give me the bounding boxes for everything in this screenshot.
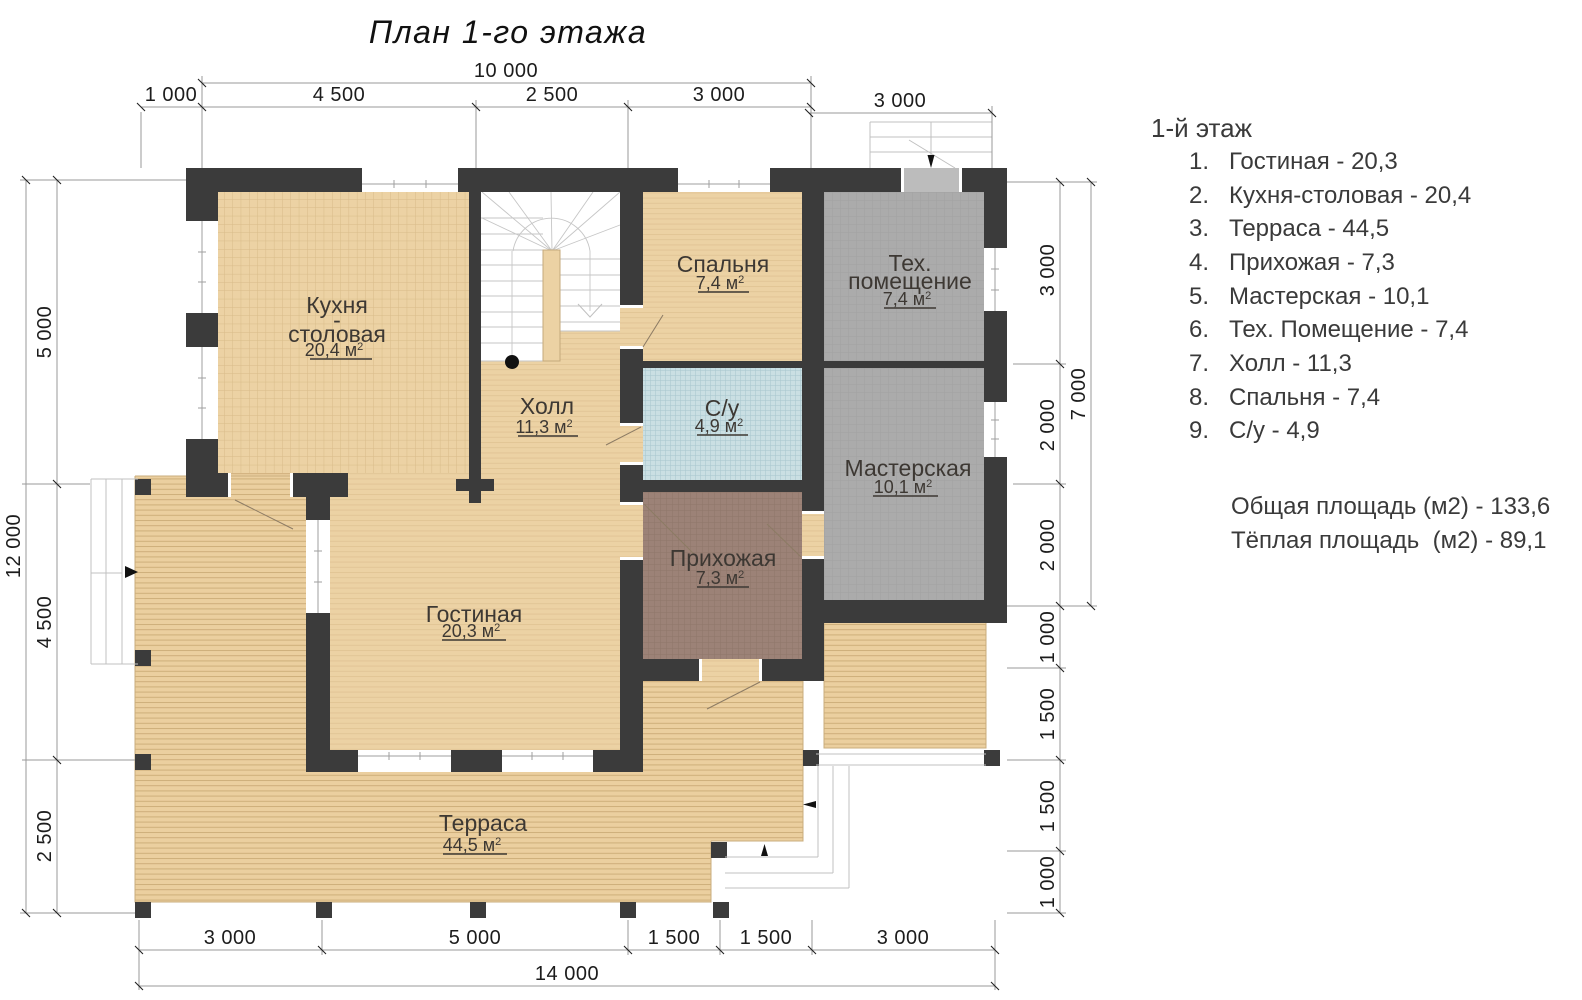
svg-text:Тех. Помещение - 7,4: Тех. Помещение - 7,4 [1229, 316, 1468, 343]
svg-text:10,1 м2: 10,1 м2 [874, 477, 933, 497]
svg-text:3 000: 3 000 [204, 927, 257, 949]
svg-text:Прихожая - 7,3: Прихожая - 7,3 [1229, 249, 1395, 276]
svg-text:2.: 2. [1189, 182, 1209, 209]
svg-text:5.: 5. [1189, 283, 1209, 310]
svg-text:1 000: 1 000 [1037, 856, 1059, 909]
svg-text:Терраса - 44,5: Терраса - 44,5 [1229, 215, 1389, 242]
svg-text:4,9 м2: 4,9 м2 [695, 416, 744, 436]
svg-text:Гостиная - 20,3: Гостиная - 20,3 [1229, 148, 1398, 175]
svg-text:10 000: 10 000 [474, 60, 538, 82]
svg-text:2 500: 2 500 [526, 84, 579, 106]
svg-text:3 000: 3 000 [1037, 244, 1059, 297]
svg-text:1 500: 1 500 [648, 927, 701, 949]
svg-text:12 000: 12 000 [3, 514, 25, 578]
svg-text:С/у - 4,9: С/у - 4,9 [1229, 417, 1320, 444]
svg-text:1-й этаж: 1-й этаж [1151, 113, 1253, 143]
svg-text:Спальня - 7,4: Спальня - 7,4 [1229, 384, 1380, 411]
svg-text:5 000: 5 000 [34, 306, 56, 359]
svg-text:1 000: 1 000 [1037, 611, 1059, 664]
svg-text:2 000: 2 000 [1037, 399, 1059, 452]
svg-text:5 000: 5 000 [449, 927, 502, 949]
svg-text:4 500: 4 500 [34, 596, 56, 649]
svg-text:7,4 м2: 7,4 м2 [883, 289, 932, 309]
svg-text:7,3 м2: 7,3 м2 [696, 568, 745, 588]
svg-text:6.: 6. [1189, 316, 1209, 343]
svg-text:14 000: 14 000 [535, 963, 599, 985]
svg-text:7 000: 7 000 [1068, 368, 1090, 421]
svg-text:Тёплая площадь (м2) - 89,1: Тёплая площадь (м2) - 89,1 [1231, 527, 1546, 554]
svg-text:Холл - 11,3: Холл - 11,3 [1229, 350, 1352, 377]
svg-text:20,3 м2: 20,3 м2 [442, 621, 501, 641]
svg-text:1 500: 1 500 [1037, 780, 1059, 833]
svg-text:1 500: 1 500 [740, 927, 793, 949]
svg-text:4 500: 4 500 [313, 84, 366, 106]
svg-text:20,4 м2: 20,4 м2 [305, 340, 364, 360]
svg-text:Мастерская - 10,1: Мастерская - 10,1 [1229, 283, 1429, 310]
svg-text:4.: 4. [1189, 249, 1209, 276]
svg-text:44,5 м2: 44,5 м2 [443, 835, 502, 855]
svg-text:9.: 9. [1189, 417, 1209, 444]
svg-text:7,4 м2: 7,4 м2 [696, 273, 745, 293]
svg-text:7.: 7. [1189, 350, 1209, 377]
svg-text:3 000: 3 000 [877, 927, 930, 949]
svg-text:Холл: Холл [520, 393, 574, 419]
svg-text:План 1-го этажа: План 1-го этажа [369, 14, 647, 50]
svg-text:2 500: 2 500 [34, 810, 56, 863]
svg-text:1.: 1. [1189, 148, 1209, 175]
svg-text:Общая площадь (м2) - 133,6: Общая площадь (м2) - 133,6 [1231, 493, 1550, 520]
svg-text:3 000: 3 000 [874, 90, 927, 112]
svg-text:8.: 8. [1189, 384, 1209, 411]
svg-text:Терраса: Терраса [439, 810, 527, 836]
svg-text:1 000: 1 000 [145, 84, 198, 106]
svg-text:2 000: 2 000 [1037, 519, 1059, 572]
svg-text:3 000: 3 000 [693, 84, 746, 106]
svg-text:3.: 3. [1189, 215, 1209, 242]
svg-text:Кухня-столовая - 20,4: Кухня-столовая - 20,4 [1229, 182, 1471, 209]
svg-text:11,3 м2: 11,3 м2 [515, 417, 572, 437]
svg-text:1 500: 1 500 [1037, 688, 1059, 741]
